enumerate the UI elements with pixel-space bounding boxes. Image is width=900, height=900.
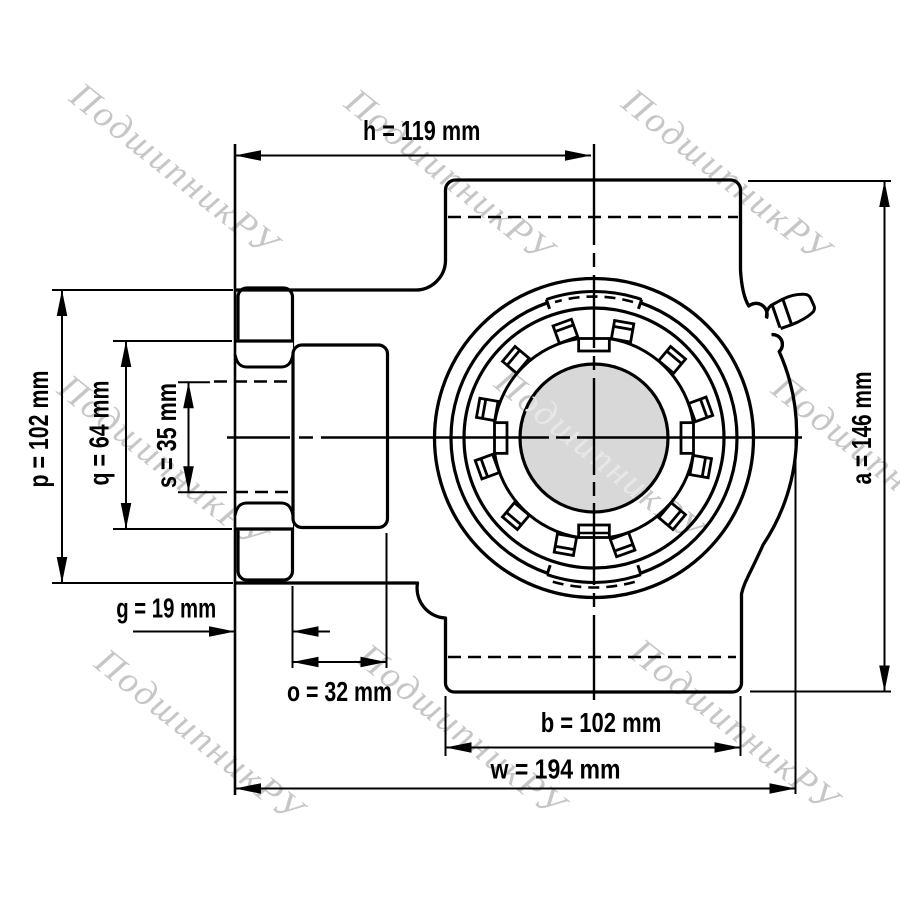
- svg-text:b = 102 mm: b = 102 mm: [541, 707, 662, 738]
- svg-text:h = 119 mm: h = 119 mm: [363, 115, 480, 146]
- svg-text:g = 19 mm: g = 19 mm: [116, 593, 216, 624]
- svg-text:w = 194 mm: w = 194 mm: [490, 754, 621, 785]
- svg-text:a = 146 mm: a = 146 mm: [846, 372, 877, 485]
- svg-text:p = 102 mm: p = 102 mm: [23, 371, 54, 488]
- svg-text:s = 35 mm: s = 35 mm: [151, 383, 182, 488]
- svg-text:o = 32 mm: o = 32 mm: [287, 676, 392, 707]
- svg-text:q = 64 mm: q = 64 mm: [84, 381, 115, 486]
